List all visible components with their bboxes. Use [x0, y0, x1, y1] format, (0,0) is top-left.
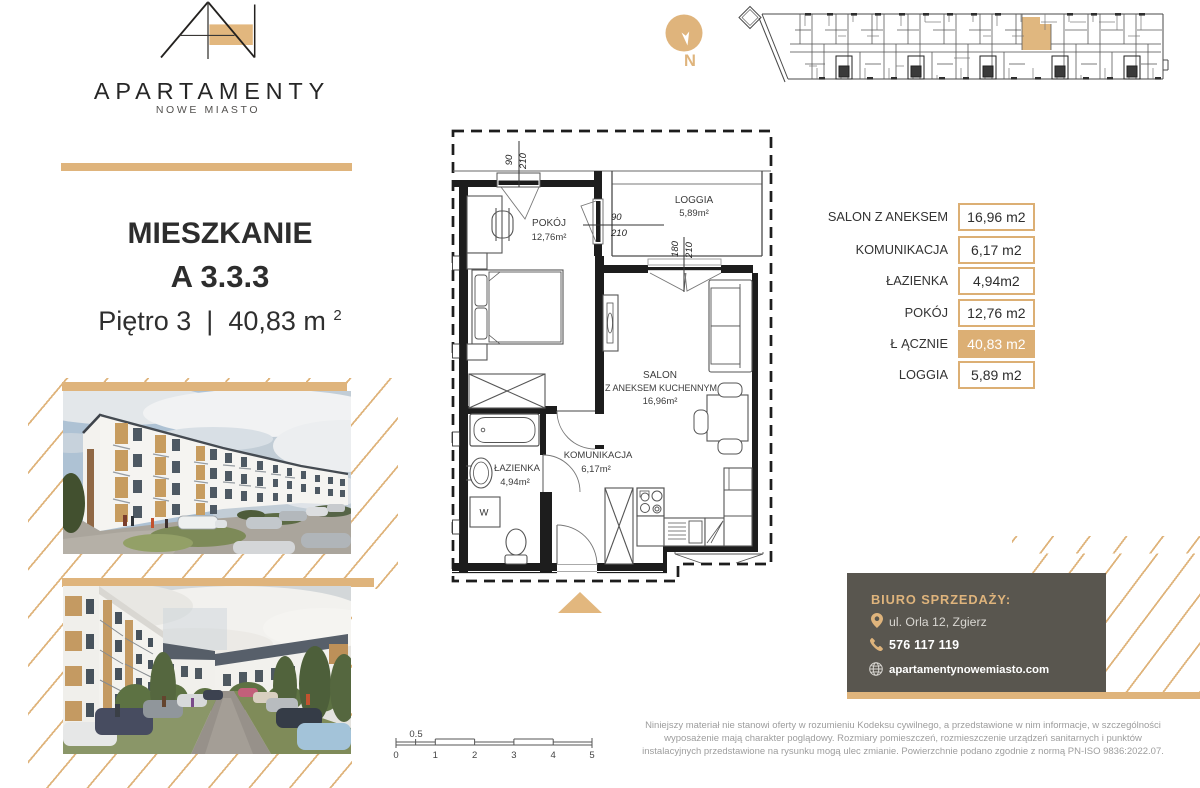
svg-text:2: 2: [472, 750, 477, 761]
svg-text:POKÓJ: POKÓJ: [532, 216, 566, 229]
svg-text:Z ANEKSEM KUCHENNYM: Z ANEKSEM KUCHENNYM: [605, 383, 717, 393]
svg-text:4: 4: [551, 750, 556, 761]
svg-text:180: 180: [670, 240, 681, 257]
svg-text:ŁAZIENKA: ŁAZIENKA: [494, 463, 541, 474]
svg-text:90: 90: [611, 212, 622, 223]
svg-text:5: 5: [589, 750, 594, 761]
svg-text:210: 210: [610, 228, 628, 239]
svg-text:12,76m²: 12,76m²: [532, 232, 567, 243]
svg-text:4,94m²: 4,94m²: [500, 477, 530, 488]
svg-text:1: 1: [433, 750, 438, 761]
svg-text:0.5: 0.5: [409, 729, 422, 740]
svg-text:SALON: SALON: [643, 370, 677, 381]
svg-text:5,89m²: 5,89m²: [679, 208, 709, 219]
svg-text:N: N: [684, 52, 696, 70]
svg-text:210: 210: [684, 241, 695, 259]
svg-text:6,17m²: 6,17m²: [581, 464, 611, 475]
svg-text:LOGGIA: LOGGIA: [675, 195, 714, 206]
svg-text:3: 3: [511, 750, 516, 761]
svg-text:0: 0: [393, 750, 398, 761]
svg-text:KOMUNIKACJA: KOMUNIKACJA: [564, 450, 633, 461]
svg-text:90: 90: [504, 154, 515, 165]
svg-text:W: W: [480, 508, 489, 519]
svg-text:16,96m²: 16,96m²: [643, 396, 678, 407]
svg-text:210: 210: [518, 152, 529, 170]
